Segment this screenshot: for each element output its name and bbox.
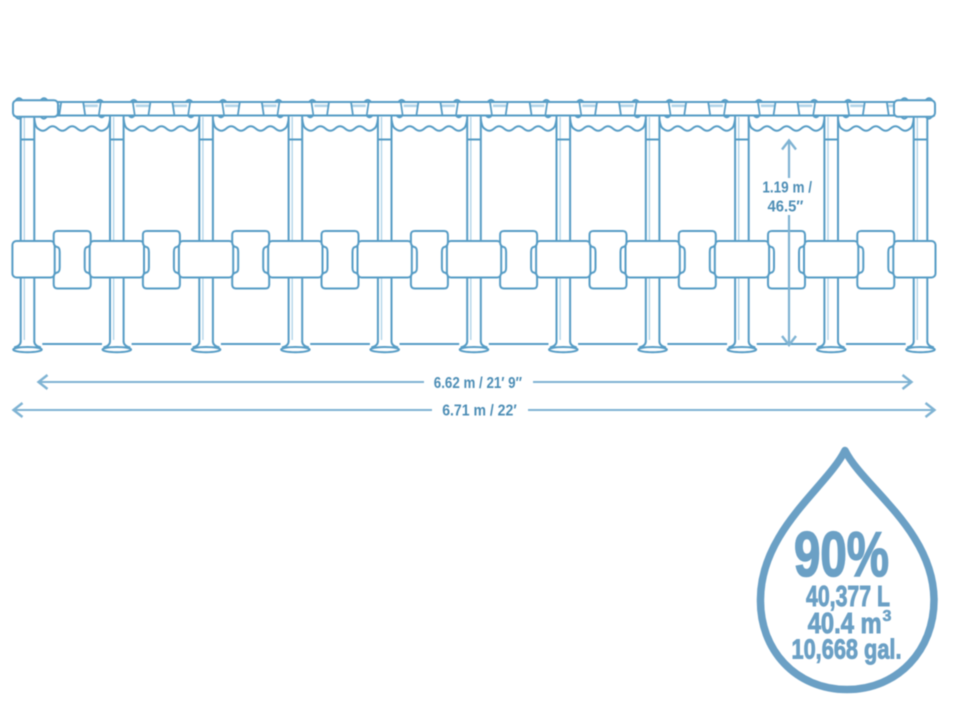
- svg-text:6.71 m / 22′: 6.71 m / 22′: [442, 403, 517, 420]
- svg-text:90%: 90%: [794, 520, 889, 590]
- svg-text:1.19 m /: 1.19 m /: [762, 180, 812, 197]
- svg-text:10,668 gal.: 10,668 gal.: [792, 634, 902, 665]
- svg-text:3: 3: [883, 608, 892, 625]
- svg-text:46.5″: 46.5″: [768, 198, 804, 215]
- svg-text:6.62 m / 21′ 9″: 6.62 m / 21′ 9″: [434, 375, 522, 392]
